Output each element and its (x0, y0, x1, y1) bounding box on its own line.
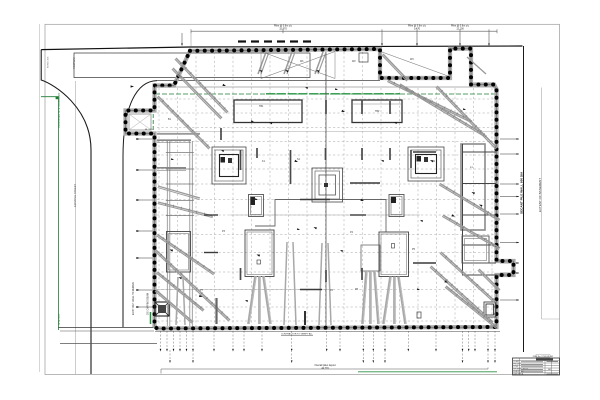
svg-text:9,470: 9,470 (414, 28, 421, 31)
svg-text:TB2: TB2 (375, 110, 380, 113)
svg-text:44,770: 44,770 (321, 367, 329, 370)
svg-text:12,100: 12,100 (456, 28, 464, 31)
svg-text:SITE BDY: SITE BDY (58, 313, 61, 325)
svg-text:SECANT PILE WALL 600 DIA: SECANT PILE WALL 600 DIA (519, 171, 523, 214)
svg-text:RL +3.5: RL +3.5 (145, 129, 153, 131)
svg-text:PROPOSED SITE BOUNDARY: PROPOSED SITE BOUNDARY (58, 92, 61, 128)
svg-text:DATE REV A: DATE REV A (513, 373, 524, 376)
svg-text:EXIST. RET. WALL TO REMAIN: EXIST. RET. WALL TO REMAIN (132, 282, 135, 315)
svg-text:32,970: 32,970 (279, 28, 287, 31)
svg-text:EXTENT OF BASEMENT: EXTENT OF BASEMENT (538, 178, 542, 212)
svg-text:TB1: TB1 (259, 105, 264, 108)
svg-text:EXISTING STREET: EXISTING STREET (73, 184, 77, 207)
svg-text:300 CAPPING BEAM: 300 CAPPING BEAM (147, 293, 150, 315)
svg-text:FOOTWAY: FOOTWAY (73, 57, 76, 69)
svg-text:CONTRACTOR TO VERIFY ALL: CONTRACTOR TO VERIFY ALL (281, 333, 314, 336)
svg-text:KERB LINE: KERB LINE (48, 56, 50, 68)
